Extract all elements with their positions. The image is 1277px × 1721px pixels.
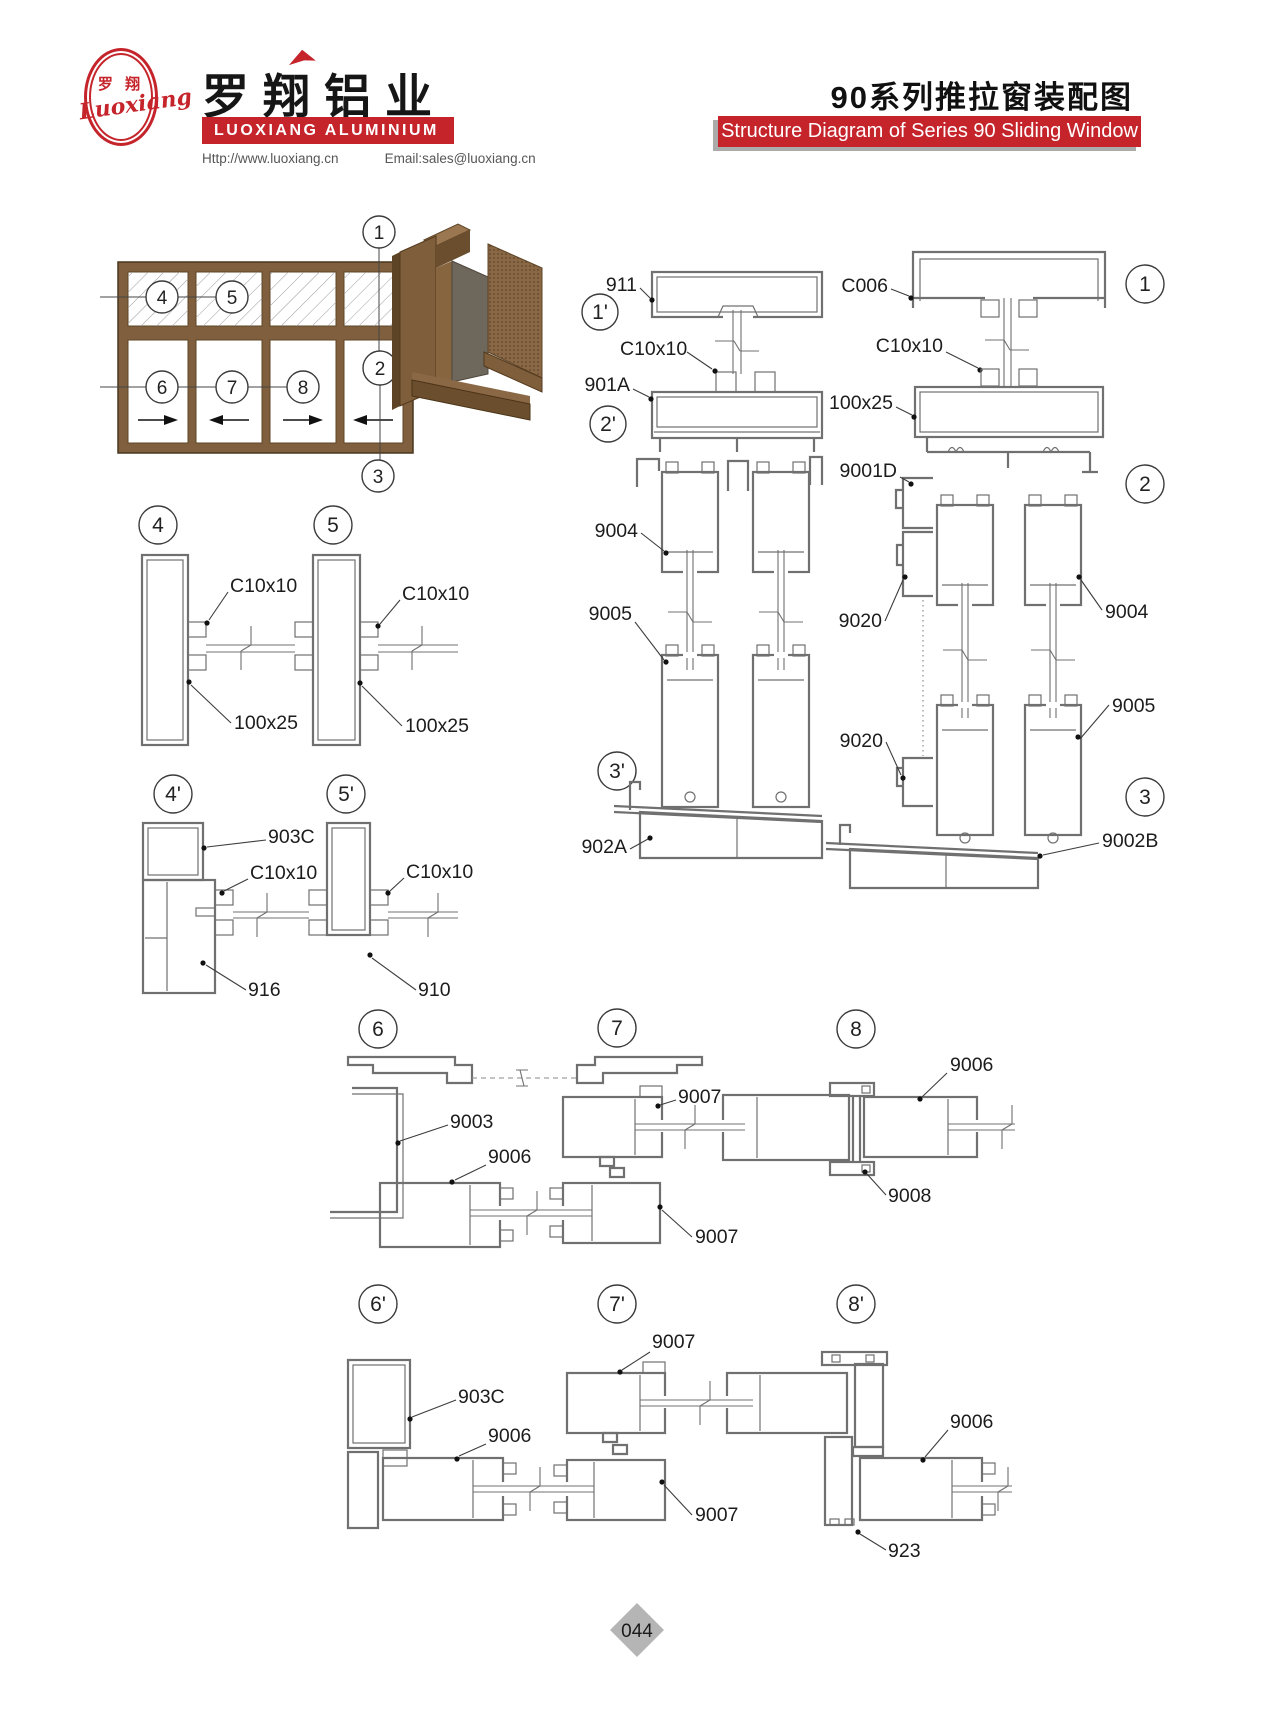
svg-text:7': 7' bbox=[609, 1293, 625, 1316]
iso-3d-profile-illustration bbox=[392, 224, 542, 420]
part-label-C006: C006 bbox=[841, 275, 888, 297]
part-label-100x25: 100x25 bbox=[829, 392, 893, 414]
svg-text:7: 7 bbox=[227, 378, 238, 399]
svg-text:6: 6 bbox=[372, 1018, 384, 1041]
part-label-c10x10: C10x10 bbox=[876, 335, 943, 357]
jamb-profile-9020-upper bbox=[897, 532, 933, 596]
window-elevation: 1 2 3 4 5 6 7 8 bbox=[100, 216, 413, 492]
svg-text:6: 6 bbox=[157, 378, 168, 399]
jamb-profile-9020-lower bbox=[897, 758, 933, 806]
section-detail-4-5: 4 5 C10x10 100x25 C10x10 100x25 bbox=[139, 506, 469, 745]
callout-3: 3 bbox=[362, 460, 394, 492]
part-label-9006: 9006 bbox=[950, 1411, 993, 1433]
part-label-916: 916 bbox=[248, 979, 281, 1001]
svg-text:2: 2 bbox=[1139, 473, 1151, 496]
part-label-903C: 903C bbox=[458, 1386, 505, 1408]
callout-2-section: 2 bbox=[1126, 465, 1164, 503]
section-detail-6p-7p-8p: 6' 7' 8' 9007 bbox=[348, 1285, 1012, 1562]
page-number-badge: 044 bbox=[610, 1603, 664, 1657]
part-label-901A: 901A bbox=[584, 374, 630, 396]
svg-text:3: 3 bbox=[373, 467, 384, 488]
part-label-9004: 9004 bbox=[1105, 601, 1149, 623]
part-label-c10x10: C10x10 bbox=[230, 575, 297, 597]
callout-4: 4 bbox=[146, 281, 178, 313]
callout-7: 7 bbox=[216, 371, 248, 403]
part-label-903C: 903C bbox=[268, 826, 315, 848]
part-label-911: 911 bbox=[606, 274, 637, 296]
callout-2: 2 bbox=[363, 351, 397, 385]
section-detail-6-7-8: 6 7 8 9003 9007 bbox=[330, 1009, 1015, 1248]
svg-text:1': 1' bbox=[592, 301, 608, 324]
part-label-9007: 9007 bbox=[695, 1504, 738, 1526]
part-label-9007: 9007 bbox=[695, 1226, 738, 1248]
svg-text:5: 5 bbox=[227, 288, 238, 309]
part-label-9004: 9004 bbox=[595, 520, 639, 542]
svg-text:8': 8' bbox=[848, 1293, 864, 1316]
svg-text:4: 4 bbox=[152, 514, 164, 537]
callout-3-section: 3 bbox=[1126, 778, 1164, 816]
svg-text:4: 4 bbox=[157, 288, 168, 309]
part-label-9005: 9005 bbox=[1112, 695, 1156, 717]
callout-5: 5 bbox=[216, 281, 248, 313]
part-label-9001D: 9001D bbox=[840, 460, 897, 482]
assembly-drawing: 1 2 3 4 5 6 7 8 bbox=[0, 0, 1277, 1721]
part-label-9007: 9007 bbox=[678, 1086, 721, 1108]
part-label-9007: 9007 bbox=[652, 1331, 695, 1353]
part-label-100x25: 100x25 bbox=[234, 712, 298, 734]
sash-profile-9005 bbox=[662, 645, 809, 807]
part-label-923: 923 bbox=[888, 1540, 921, 1562]
svg-text:8: 8 bbox=[298, 378, 309, 399]
part-label-9020: 9020 bbox=[840, 730, 884, 752]
callout-6-section: 6 bbox=[359, 1010, 397, 1048]
part-label-c10x10: C10x10 bbox=[406, 861, 473, 883]
sash-profile-9004 bbox=[937, 495, 1081, 605]
callout-5-prime: 5' bbox=[327, 775, 365, 813]
callout-1-section: 1 bbox=[1126, 265, 1164, 303]
sash-profile-9005 bbox=[937, 695, 1081, 835]
jamb-profile-9001D bbox=[896, 478, 933, 528]
part-label-c10x10: C10x10 bbox=[402, 583, 469, 605]
part-label-910: 910 bbox=[418, 979, 451, 1001]
part-label-9005: 9005 bbox=[589, 603, 633, 625]
svg-text:2: 2 bbox=[375, 359, 386, 380]
callout-4-section: 4 bbox=[139, 506, 177, 544]
section-detail-1-2-3: C006 1 C10x10 100x25 2 9001D bbox=[826, 252, 1164, 888]
svg-text:8: 8 bbox=[850, 1018, 862, 1041]
part-label-9020: 9020 bbox=[839, 610, 883, 632]
svg-text:6': 6' bbox=[370, 1293, 386, 1316]
catalog-page: 罗 翔 Luoxiang 罗翔铝业 LUOXIANG ALUMINIUM Htt… bbox=[0, 0, 1277, 1721]
part-label-9006: 9006 bbox=[488, 1146, 531, 1168]
callout-6-prime: 6' bbox=[359, 1285, 397, 1323]
part-label-9003: 9003 bbox=[450, 1111, 493, 1133]
svg-text:3: 3 bbox=[1139, 786, 1151, 809]
svg-text:1: 1 bbox=[1139, 273, 1151, 296]
callout-8: 8 bbox=[287, 371, 319, 403]
callout-8-section: 8 bbox=[837, 1010, 875, 1048]
part-label-9002B: 9002B bbox=[1102, 830, 1158, 852]
corner-jamb-8p bbox=[822, 1352, 887, 1525]
svg-text:1: 1 bbox=[374, 223, 385, 244]
callout-1-prime: 1' bbox=[582, 294, 618, 330]
svg-text:5: 5 bbox=[327, 514, 339, 537]
callout-8-prime: 8' bbox=[837, 1285, 875, 1323]
svg-text:4': 4' bbox=[165, 783, 181, 806]
callout-2-prime: 2' bbox=[590, 406, 626, 442]
svg-text:7: 7 bbox=[611, 1017, 623, 1040]
sash-profile-9004 bbox=[662, 462, 809, 572]
part-label-c10x10: C10x10 bbox=[620, 338, 687, 360]
sill-profile-9002B bbox=[826, 825, 1038, 888]
svg-text:2': 2' bbox=[600, 413, 616, 436]
callout-5-section: 5 bbox=[314, 506, 352, 544]
svg-text:5': 5' bbox=[338, 783, 354, 806]
part-label-902A: 902A bbox=[581, 836, 627, 858]
callout-6: 6 bbox=[146, 371, 178, 403]
page-number: 044 bbox=[621, 1621, 653, 1642]
callout-7-section: 7 bbox=[598, 1009, 636, 1047]
svg-text:3': 3' bbox=[609, 760, 625, 783]
callout-4-prime: 4' bbox=[154, 775, 192, 813]
part-label-9006: 9006 bbox=[950, 1054, 993, 1076]
callout-7-prime: 7' bbox=[598, 1285, 636, 1323]
callout-1: 1 bbox=[363, 216, 395, 248]
part-label-9006: 9006 bbox=[488, 1425, 531, 1447]
section-detail-1p-2p-3p: 911 1' C10x10 901A 2' bbox=[581, 272, 822, 858]
part-label-c10x10: C10x10 bbox=[250, 862, 317, 884]
part-label-9008: 9008 bbox=[888, 1185, 931, 1207]
part-label-100x25: 100x25 bbox=[405, 715, 469, 737]
section-detail-4p-5p: 4' 5' 903C C10x10 916 C10x10 91 bbox=[143, 775, 473, 1001]
